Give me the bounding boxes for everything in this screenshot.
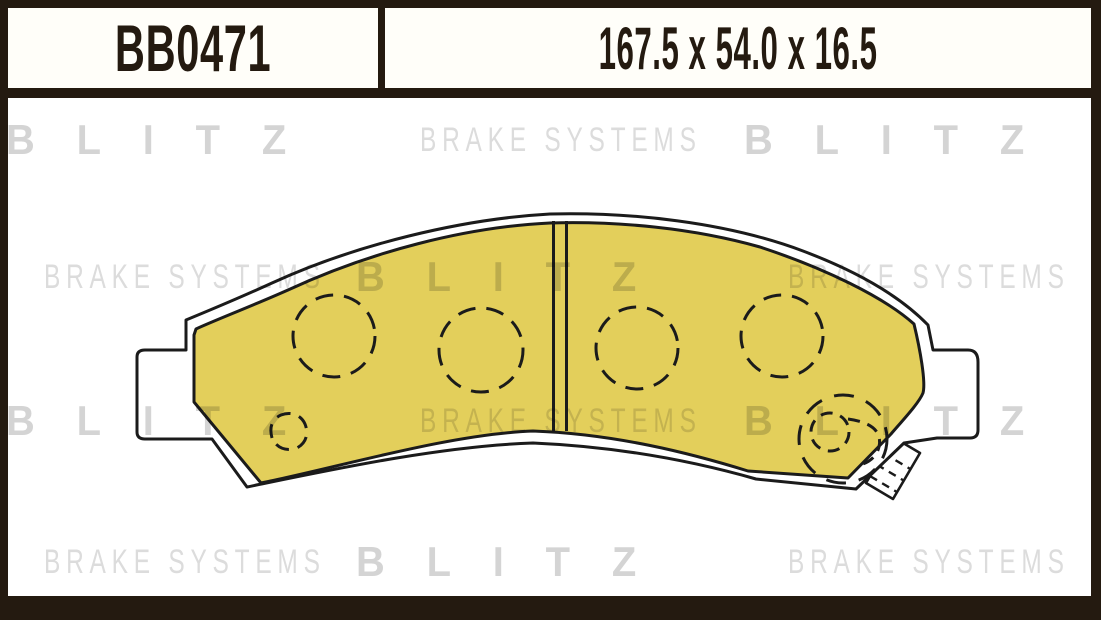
- pad-dimensions: 167.5 x 54.0 x 16.5: [599, 14, 878, 83]
- header: BB0471 167.5 x 54.0 x 16.5: [8, 8, 1091, 88]
- header-divider: [378, 8, 385, 88]
- dimensions-cell: 167.5 x 54.0 x 16.5: [385, 8, 1091, 88]
- part-number-cell: BB0471: [8, 8, 378, 88]
- part-number: BB0471: [115, 10, 271, 86]
- drawing-area: [8, 98, 1091, 596]
- catalog-image-frame: BB0471 167.5 x 54.0 x 16.5: [0, 0, 1101, 620]
